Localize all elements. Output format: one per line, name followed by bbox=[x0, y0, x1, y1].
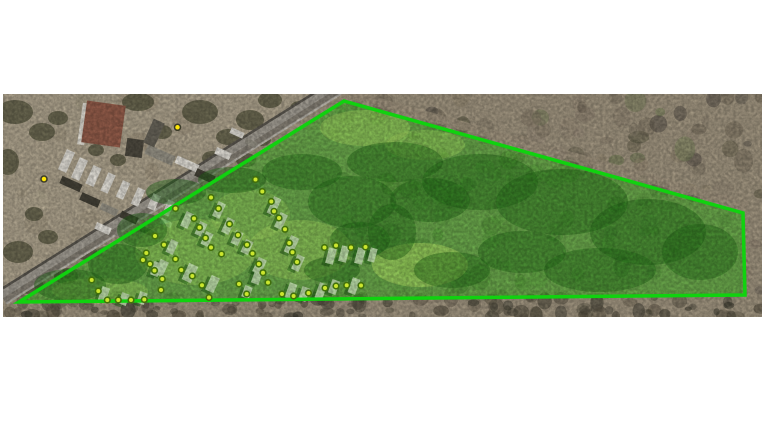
tree-marker[interactable] bbox=[140, 257, 146, 263]
tree-marker[interactable] bbox=[173, 206, 179, 212]
tree-marker[interactable] bbox=[116, 297, 122, 303]
tree-marker[interactable] bbox=[276, 215, 282, 221]
tree-marker[interactable] bbox=[333, 243, 339, 249]
tree-marker[interactable] bbox=[333, 283, 339, 289]
tree-marker[interactable] bbox=[190, 273, 196, 279]
tree-marker[interactable] bbox=[206, 295, 212, 301]
tree-marker[interactable] bbox=[265, 280, 271, 286]
tree-marker[interactable] bbox=[282, 227, 288, 233]
tree-marker[interactable] bbox=[173, 256, 179, 262]
tree-marker[interactable] bbox=[290, 250, 296, 256]
aerial-map[interactable] bbox=[0, 0, 762, 445]
tree-marker[interactable] bbox=[128, 297, 134, 303]
tree-marker[interactable] bbox=[279, 291, 285, 297]
tree-marker[interactable] bbox=[208, 245, 214, 251]
tree-marker[interactable] bbox=[260, 270, 266, 276]
tree-marker[interactable] bbox=[216, 206, 222, 212]
map-viewport[interactable] bbox=[0, 0, 762, 445]
tree-marker[interactable] bbox=[197, 225, 203, 231]
tree-marker[interactable] bbox=[271, 209, 277, 215]
tree-marker[interactable] bbox=[105, 297, 111, 303]
tree-marker[interactable] bbox=[358, 283, 364, 289]
tree-marker[interactable] bbox=[287, 240, 293, 246]
site-marker[interactable] bbox=[175, 124, 181, 130]
tree-marker[interactable] bbox=[244, 242, 250, 248]
tree-marker[interactable] bbox=[203, 235, 209, 241]
tree-marker[interactable] bbox=[227, 221, 233, 227]
site-marker[interactable] bbox=[41, 176, 47, 182]
tree-marker[interactable] bbox=[244, 291, 250, 297]
tree-marker[interactable] bbox=[235, 232, 241, 238]
tree-marker[interactable] bbox=[256, 261, 262, 267]
tree-marker[interactable] bbox=[322, 285, 328, 291]
tree-marker[interactable] bbox=[291, 293, 297, 299]
tree-marker[interactable] bbox=[363, 244, 369, 250]
tree-marker[interactable] bbox=[89, 277, 95, 283]
tree-marker[interactable] bbox=[269, 199, 275, 205]
tree-marker[interactable] bbox=[142, 297, 148, 303]
tree-marker[interactable] bbox=[260, 189, 266, 195]
tree-marker[interactable] bbox=[179, 267, 185, 273]
tree-marker[interactable] bbox=[322, 245, 328, 251]
tree-marker[interactable] bbox=[253, 177, 259, 183]
tree-marker[interactable] bbox=[306, 290, 312, 296]
tree-marker[interactable] bbox=[152, 268, 158, 274]
tree-marker[interactable] bbox=[344, 283, 350, 289]
grain-light bbox=[3, 94, 762, 317]
tree-marker[interactable] bbox=[294, 259, 300, 265]
tree-marker[interactable] bbox=[191, 216, 197, 222]
tree-marker[interactable] bbox=[161, 242, 167, 248]
tree-marker[interactable] bbox=[158, 287, 164, 293]
tree-marker[interactable] bbox=[152, 233, 158, 239]
tree-marker[interactable] bbox=[219, 251, 225, 257]
tree-marker[interactable] bbox=[144, 250, 150, 256]
photo-grain-layer bbox=[3, 94, 762, 317]
tree-marker[interactable] bbox=[236, 281, 242, 287]
tree-marker[interactable] bbox=[208, 195, 214, 201]
tree-marker[interactable] bbox=[250, 251, 256, 257]
tree-marker[interactable] bbox=[147, 261, 153, 267]
tree-marker[interactable] bbox=[160, 276, 166, 282]
tree-marker[interactable] bbox=[199, 283, 205, 289]
tree-marker[interactable] bbox=[96, 288, 102, 294]
tree-marker[interactable] bbox=[348, 245, 354, 251]
